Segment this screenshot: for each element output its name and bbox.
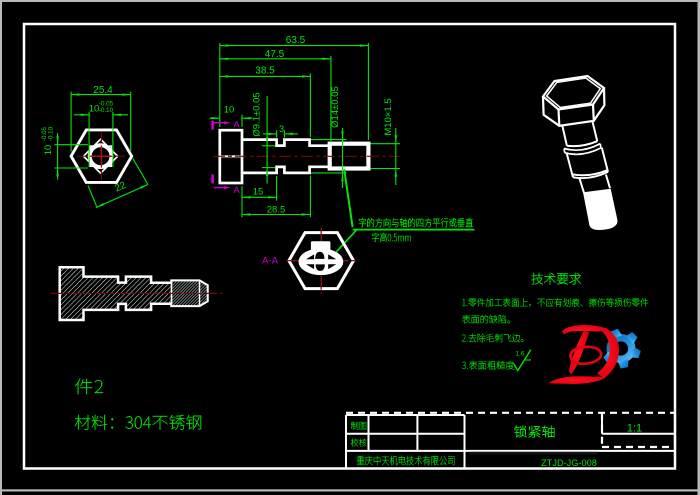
svg-text:10: 10 [224,105,235,116]
svg-text:A: A [234,120,240,130]
svg-text:A: A [234,185,240,195]
svg-text:3: 3 [279,124,284,134]
svg-text:10: 10 [89,104,100,115]
svg-text:ZTJD-JG-008: ZTJD-JG-008 [541,458,597,468]
svg-text:10: 10 [43,145,54,156]
svg-text:15: 15 [253,186,264,197]
svg-text:28.5: 28.5 [267,204,286,215]
svg-text:-0.10: -0.10 [48,126,55,141]
svg-text:63.5: 63.5 [286,35,306,46]
svg-text:1:1: 1:1 [627,423,642,435]
svg-text:1.6: 1.6 [515,351,524,358]
svg-text:A-A: A-A [262,256,279,267]
svg-text:38.5: 38.5 [255,66,275,77]
svg-text:M10×1.5: M10×1.5 [383,98,394,135]
svg-text:-0.10: -0.10 [99,107,114,114]
svg-text:Ø9.1±0.05: Ø9.1±0.05 [252,92,263,136]
svg-text:Ø14±0.05: Ø14±0.05 [330,86,341,128]
